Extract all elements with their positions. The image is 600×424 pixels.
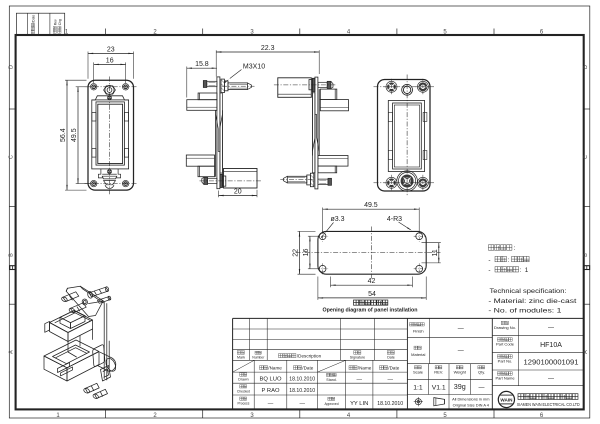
svg-text:Process: Process [237, 402, 249, 406]
svg-text:1: 1 [525, 267, 529, 274]
svg-text:C: C [8, 155, 14, 159]
svg-text:Approved: Approved [324, 402, 338, 406]
svg-text:Date: Date [387, 356, 395, 360]
svg-text:—: — [268, 401, 274, 407]
svg-text:Part Name: Part Name [495, 376, 515, 381]
svg-text:Number: Number [252, 356, 265, 360]
svg-text:22: 22 [293, 249, 300, 257]
svg-text:—: — [479, 385, 485, 391]
svg-text:Finish: Finish [413, 328, 424, 333]
svg-text:Chg: Chg [58, 19, 62, 25]
svg-text:Material: Material [411, 352, 425, 357]
svg-text:P RAO: P RAO [262, 388, 280, 394]
svg-text:—: — [458, 349, 464, 355]
svg-text:C: C [583, 155, 589, 159]
svg-text:-: - [488, 267, 490, 274]
svg-text:4-R3: 4-R3 [387, 216, 402, 223]
svg-text:—: — [356, 376, 362, 382]
svg-text:—: — [548, 326, 554, 332]
svg-text:—: — [387, 376, 393, 382]
svg-text:1290100001091: 1290100001091 [524, 358, 579, 367]
svg-text:/Date: /Date [302, 366, 313, 371]
svg-text:54: 54 [368, 291, 376, 298]
svg-text:Part Code: Part Code [496, 342, 515, 347]
svg-text:V1.1: V1.1 [432, 385, 446, 392]
svg-text:-: - [488, 257, 490, 264]
svg-text:Rev: Rev [53, 19, 57, 25]
svg-text:/Name: /Name [358, 366, 372, 371]
svg-text:M3X10: M3X10 [243, 63, 265, 70]
svg-text:Part No.: Part No. [498, 359, 513, 364]
svg-text:1:1: 1:1 [413, 385, 423, 392]
svg-text:Technical specification:: Technical specification: [490, 288, 567, 295]
svg-text:B: B [8, 253, 14, 257]
svg-text:Stand.: Stand. [326, 378, 336, 382]
svg-text:—: — [458, 326, 464, 332]
svg-text:18.10.2010: 18.10.2010 [289, 388, 315, 394]
svg-text:Signature: Signature [350, 356, 365, 360]
svg-text:D: D [8, 65, 14, 69]
svg-text:YY LIN: YY LIN [350, 401, 368, 407]
svg-text:Weight: Weight [454, 369, 467, 374]
svg-text:39g: 39g [454, 382, 466, 391]
svg-text:—: — [548, 377, 554, 383]
svg-text:Qty.: Qty. [478, 369, 485, 374]
svg-text:/Date: /Date [32, 15, 36, 23]
svg-text:15.8: 15.8 [195, 61, 209, 68]
svg-text:49.5: 49.5 [364, 202, 378, 209]
svg-text:Drawn: Drawn [238, 378, 248, 382]
svg-text:D: D [583, 65, 589, 69]
svg-text:Drawing No.: Drawing No. [494, 325, 516, 330]
svg-text:11: 11 [432, 249, 439, 256]
svg-text:Checked: Checked [237, 389, 250, 393]
svg-text:42: 42 [368, 278, 376, 285]
svg-text:Original Size DIN A 4: Original Size DIN A 4 [453, 402, 490, 407]
svg-text:18.10.2010: 18.10.2010 [289, 377, 315, 383]
svg-text:A: A [583, 350, 589, 354]
svg-text:20: 20 [234, 189, 242, 196]
svg-text:REV.: REV. [434, 369, 443, 374]
svg-text:HF10A: HF10A [540, 342, 562, 349]
svg-text:B: B [583, 253, 589, 257]
svg-text:16: 16 [303, 249, 310, 257]
svg-text:16: 16 [106, 57, 114, 64]
svg-text:A: A [8, 350, 14, 354]
svg-text:Opening diagram of panel insta: Opening diagram of panel installation [323, 308, 418, 314]
svg-text:/Description: /Description [297, 354, 322, 359]
svg-text:BQ LUO: BQ LUO [260, 377, 282, 383]
svg-text:18.10.2010: 18.10.2010 [377, 401, 403, 407]
svg-text:56.4: 56.4 [60, 128, 67, 142]
svg-text:/Date: /Date [388, 366, 399, 371]
svg-text:XIAMEN WAIN ELECTRICAL CO.LTD: XIAMEN WAIN ELECTRICAL CO.LTD [517, 402, 580, 407]
svg-text:23: 23 [107, 46, 115, 53]
svg-text:Scale: Scale [413, 369, 424, 374]
svg-text:ø3.3: ø3.3 [330, 216, 344, 223]
svg-text:- Material: zinc die-cast: - Material: zinc die-cast [488, 298, 576, 305]
svg-text:49.5: 49.5 [71, 128, 78, 142]
svg-text:WAIN: WAIN [500, 398, 513, 403]
svg-text:—: — [299, 401, 305, 407]
svg-text:Mark: Mark [237, 356, 245, 360]
svg-text:All Dimensions in mm: All Dimensions in mm [452, 396, 489, 401]
svg-text:/Name: /Name [268, 366, 282, 371]
svg-text:22.3: 22.3 [261, 45, 275, 52]
svg-text::: : [514, 245, 516, 252]
svg-text:- No. of modules: 1: - No. of modules: 1 [488, 308, 561, 315]
